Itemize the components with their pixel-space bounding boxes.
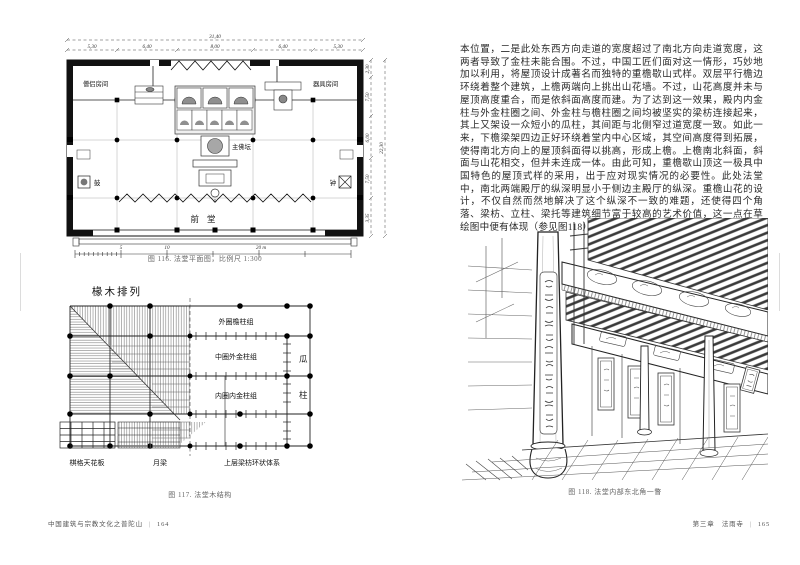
dim-right-4: 7,50 — [365, 174, 371, 183]
figure-117-structure-diagram: 椽木排列 — [40, 282, 360, 482]
figure-118-interior-sketch — [462, 218, 768, 482]
footer-divider: | — [750, 521, 752, 528]
inner-ring-label: 内圈内金柱组 — [215, 391, 257, 400]
body-paragraph: 本位置，二是此处东西方向走道的宽度超过了南北方向走道宽度，这两者导致了金柱未能合… — [460, 44, 763, 235]
figure-118-caption: 图 118. 法堂内部东北角一瞥 — [462, 487, 768, 497]
dim-top-5: 5,30 — [333, 44, 342, 50]
page-edge-mark-right — [779, 253, 780, 311]
coffered-ceiling-label: 棋格天花板 — [70, 458, 105, 467]
dim-total-width: 31,40 — [209, 33, 221, 40]
footer-divider: | — [149, 521, 151, 528]
rafter-hatch — [70, 306, 190, 420]
dim-total-height: 22,30 — [379, 142, 385, 154]
left-page-number: 164 — [157, 521, 169, 528]
scale-5: 5 — [120, 245, 123, 251]
figure-117-title: 椽木排列 — [92, 285, 142, 298]
front-hall-label: 前堂 — [190, 214, 223, 224]
scale-10: 10 — [164, 245, 170, 251]
figure-116-caption: 图 116. 法堂平面图，比例尺 1:300 — [40, 254, 370, 264]
bell-label: 钟 — [330, 178, 336, 187]
chapter-title: 第三章 法雨寺 — [693, 521, 744, 528]
upper-beam-ring-label: 上层梁枋环状体系 — [224, 458, 280, 467]
left-page-footer: 中国建筑与宗教文化之普陀山|164 — [48, 518, 169, 528]
figure-117-caption: 图 117. 法堂木结构 — [40, 490, 360, 500]
background-wall-lines — [468, 238, 532, 410]
post-label: 柱 — [299, 390, 308, 400]
book-spread: 31,40 5,30 6,40 8,00 6,40 5,30 — [0, 0, 800, 565]
drum-label: 鼓 — [94, 178, 101, 187]
dim-right-5: 3,35 — [365, 213, 371, 222]
main-altar-label: 主佛坛 — [232, 142, 252, 151]
dim-top-4: 6,40 — [278, 43, 287, 50]
right-page-number: 165 — [758, 521, 770, 528]
moon-beam-label: 月梁 — [153, 458, 167, 467]
scale-20m: 20 m — [256, 245, 266, 251]
foreground-column — [530, 232, 567, 478]
room-left-label: 僧侣房间 — [83, 79, 108, 88]
floor-tiles — [462, 434, 768, 480]
dim-right-3: 6,00 — [365, 133, 371, 142]
book-title: 中国建筑与宗教文化之普陀山 — [48, 521, 143, 528]
dim-top-3: 8,00 — [210, 44, 219, 50]
melon-label: 瓜 — [299, 354, 308, 364]
moon-beams — [118, 422, 206, 448]
dim-top-1: 5,30 — [87, 44, 96, 50]
right-page-footer: 第三章 法雨寺|165 — [693, 518, 770, 528]
dim-top-2: 6,40 — [142, 43, 151, 50]
room-right-label: 器具房间 — [313, 79, 338, 88]
foreground-hatch — [466, 456, 528, 480]
dim-right-1: 2,30 — [365, 64, 371, 73]
figure-116-floor-plan: 31,40 5,30 6,40 8,00 6,40 5,30 — [55, 30, 395, 264]
page-edge-mark-left — [20, 253, 21, 311]
ring-beam-rungs — [196, 332, 291, 450]
outer-ring-label: 外圈檐柱组 — [219, 317, 254, 326]
dim-right-2: 7,50 — [365, 92, 371, 101]
middle-ring-label: 中圈外金柱组 — [215, 352, 257, 361]
column-base-pot — [530, 449, 567, 478]
